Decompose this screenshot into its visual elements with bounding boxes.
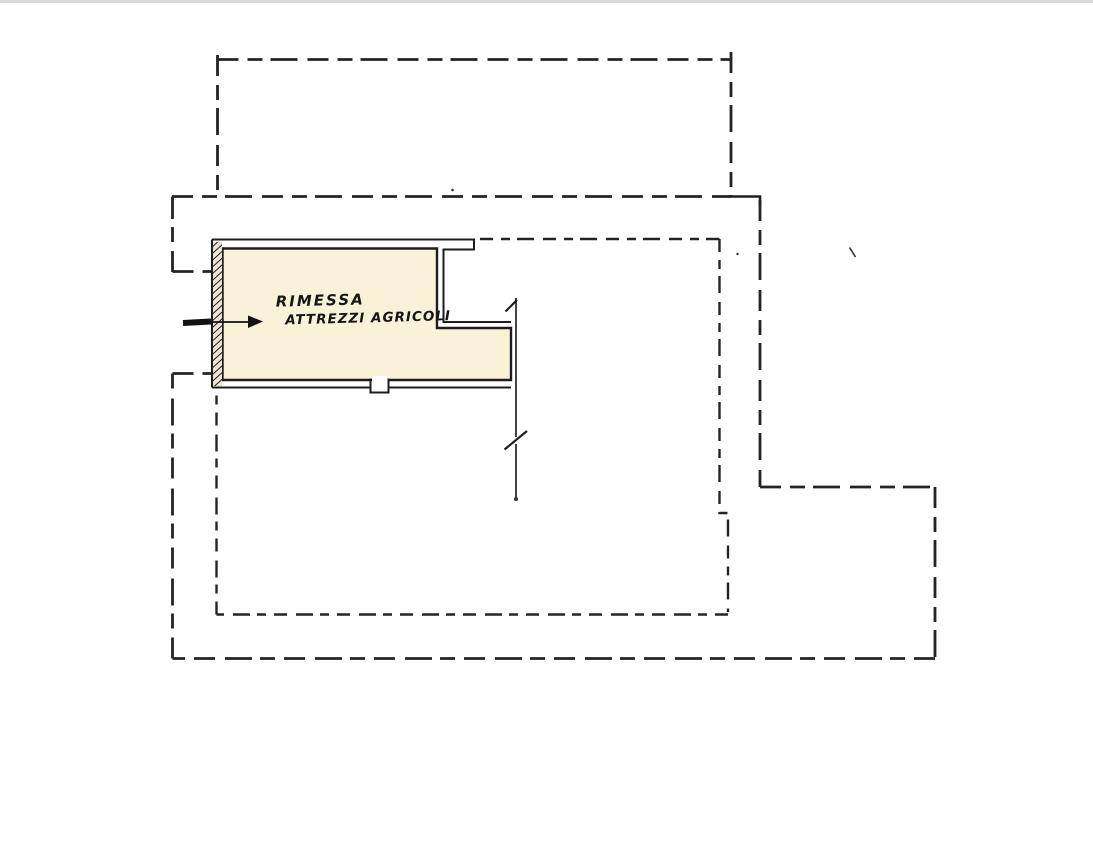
arrow-tail-stroke: [183, 322, 211, 324]
ink-speck-stroke: [850, 248, 856, 258]
boundary-step-corner: [731, 197, 760, 207]
ink-speck-dot: [736, 253, 738, 255]
courtyard-right-edge: [720, 239, 729, 612]
ink-speck-dot: [451, 189, 454, 192]
floor-plan-drawing: RIMESSA ATTREZZI AGRICOLI: [0, 0, 1093, 851]
door-notch: [371, 376, 389, 393]
leader-end-dot: [514, 497, 518, 501]
door-opening-gap: [372, 376, 388, 385]
building-label-line1: RIMESSA: [276, 290, 365, 310]
left-wall-hatching: [213, 242, 222, 386]
cadastral-plan-page: RIMESSA ATTREZZI AGRICOLI: [0, 0, 1093, 851]
ink-specks: [451, 189, 855, 257]
